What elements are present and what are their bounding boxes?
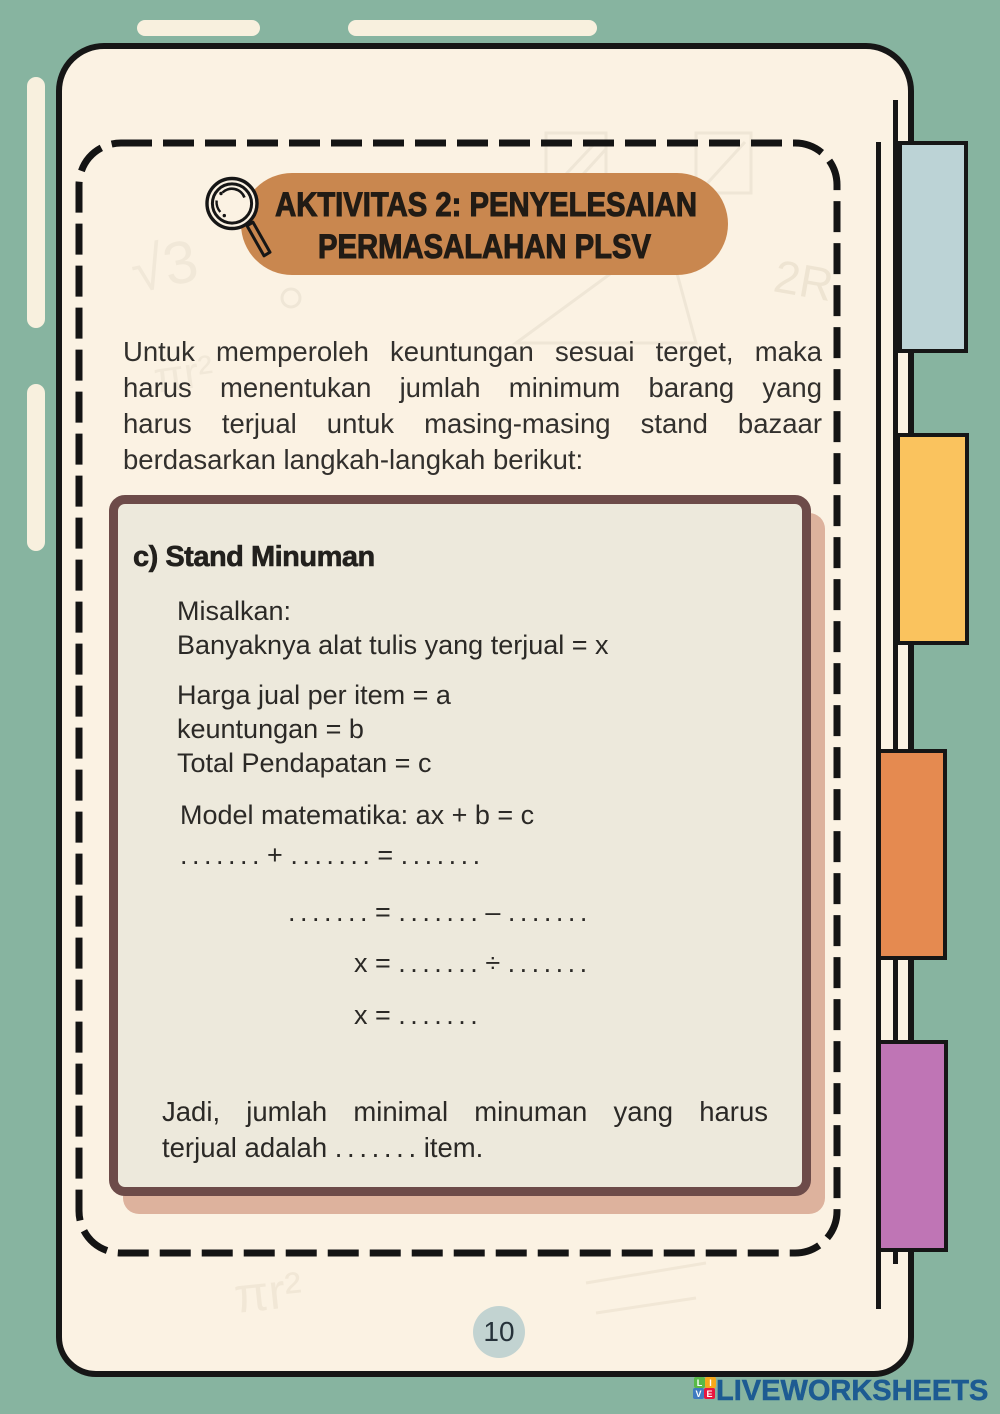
svg-text:V: V bbox=[695, 1389, 701, 1399]
svg-text:I: I bbox=[709, 1378, 712, 1388]
svg-text:E: E bbox=[706, 1389, 712, 1399]
svg-text:L: L bbox=[697, 1378, 703, 1388]
